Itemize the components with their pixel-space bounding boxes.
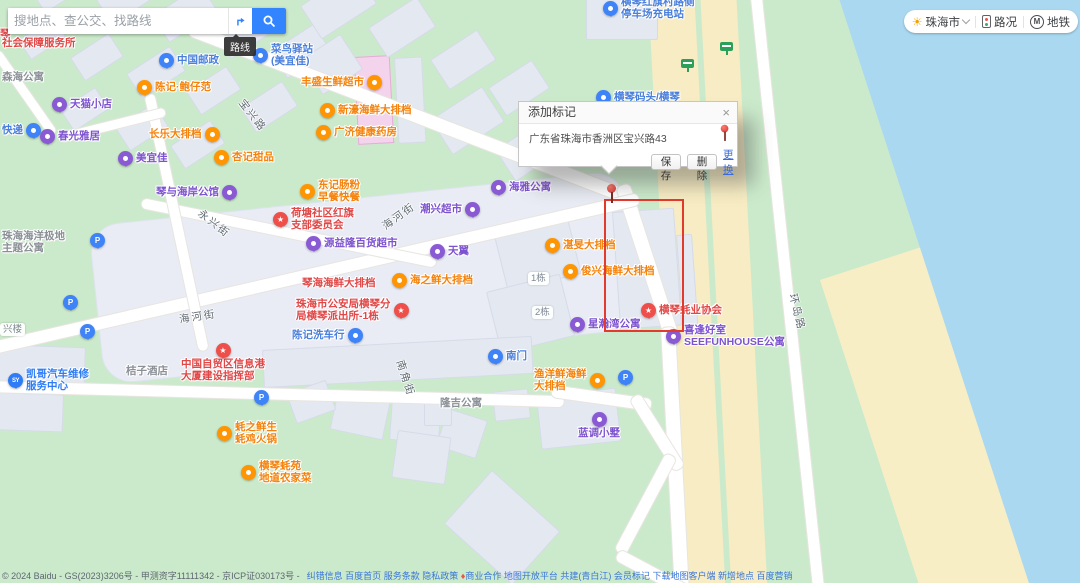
map-marker-pin-icon[interactable] xyxy=(606,184,618,208)
restaurant-pin-icon xyxy=(367,75,382,90)
parking-pin-icon: P xyxy=(254,390,269,405)
poi-label: 喜逢好室SEEFUNHOUSE公寓 xyxy=(684,325,785,348)
map-poi[interactable]: P xyxy=(80,324,95,339)
footer-link[interactable]: 纠错信息 xyxy=(307,571,343,581)
blue-pin-icon xyxy=(159,53,174,68)
poi-label: 中国邮政 xyxy=(177,55,219,67)
poi-label: 南门 xyxy=(506,351,527,363)
save-button[interactable]: 保存 xyxy=(651,154,681,170)
blue-pin-icon xyxy=(348,328,363,343)
poi-label: 中国自贸区信息港大厦建设指挥部 xyxy=(181,359,265,382)
restaurant-pin-icon xyxy=(217,426,232,441)
map-poi[interactable]: 桔子酒店 xyxy=(126,366,168,378)
poi-label: 源益隆百货超市 xyxy=(324,238,398,250)
close-icon[interactable]: × xyxy=(722,105,730,120)
footer-link[interactable]: 百度营销 xyxy=(757,571,793,581)
shop-pin-icon xyxy=(465,202,480,217)
map-poi[interactable]: 1栋 xyxy=(528,272,549,285)
dialog-title: 添加标记 xyxy=(519,102,737,124)
poi-label: 长乐大排档 xyxy=(149,129,202,141)
footer: © 2024 Baidu - GS(2023)3206号 - 甲测资字11111… xyxy=(2,569,793,582)
poi-label: 横琴红旗村路侧停车场充电站 xyxy=(621,0,695,20)
route-icon xyxy=(235,14,246,29)
blue-pin-icon xyxy=(26,123,41,138)
parking-pin-icon: P xyxy=(90,233,105,248)
poi-label: 美宜佳 xyxy=(136,153,168,165)
map-poi[interactable]: 丰盛生鲜超市 xyxy=(301,75,382,90)
divider xyxy=(975,16,976,28)
map-poi[interactable]: 春光雅居 xyxy=(40,129,100,144)
shop-pin-icon xyxy=(306,236,321,251)
map-poi[interactable]: P xyxy=(63,295,78,310)
metro-toggle[interactable]: M 地铁 xyxy=(1030,14,1070,30)
map-poi[interactable]: P xyxy=(618,370,633,385)
poi-label: 新濠海鲜大排档 xyxy=(338,105,412,117)
poi-label: 凯哥汽车维修服务中心 xyxy=(26,369,89,392)
copyright-text: © 2024 Baidu - GS(2023)3206号 - 甲测资字11111… xyxy=(2,569,300,582)
map-poi[interactable]: 琴海海鲜大排档 xyxy=(302,278,376,290)
map-poi[interactable]: P xyxy=(90,233,105,248)
poi-label: 兴楼 xyxy=(0,323,25,336)
poi-label: 丰盛生鲜超市 xyxy=(301,77,364,89)
add-marker-dialog: 添加标记 × 广东省珠海市香洲区宝兴路43 保存 删除 更换 xyxy=(518,101,738,167)
map-poi[interactable]: 中国邮政 xyxy=(159,53,219,68)
city-selector[interactable]: ☀ 珠海市 xyxy=(912,14,969,30)
restaurant-pin-icon xyxy=(563,264,578,279)
poi-label: 东记肠粉早餐快餐 xyxy=(318,180,360,203)
restaurant-pin-icon xyxy=(137,80,152,95)
map-poi[interactable]: 长乐大排档 xyxy=(149,127,220,142)
search-input[interactable] xyxy=(8,8,228,34)
search-bar xyxy=(8,8,286,34)
marker-pin-icon xyxy=(720,125,730,145)
red-pin-icon: ★ xyxy=(216,343,231,358)
annotation-rectangle xyxy=(604,199,684,332)
map-poi[interactable]: 海之鲜大排档 xyxy=(392,273,473,288)
map-poi[interactable]: 珠海市公安局横琴分局横琴派出所-1栋★ xyxy=(296,299,409,322)
city-name: 珠海市 xyxy=(926,14,961,30)
blue-pin-icon xyxy=(603,1,618,16)
map-poi[interactable]: 渔洋鲜海鲜大排档 xyxy=(534,369,605,392)
metro-label: 地铁 xyxy=(1047,14,1070,30)
map-poi[interactable]: P xyxy=(254,390,269,405)
delete-button[interactable]: 删除 xyxy=(687,154,717,170)
poi-label: 2栋 xyxy=(532,306,553,319)
restaurant-pin-icon xyxy=(545,238,560,253)
map-poi[interactable]: SY凯哥汽车维修服务中心 xyxy=(8,369,89,392)
poi-label: 广济健康药房 xyxy=(334,127,397,139)
metro-icon: M xyxy=(1030,15,1044,29)
restaurant-pin-icon xyxy=(214,150,229,165)
restaurant-pin-icon xyxy=(241,465,256,480)
map-poi[interactable]: 新濠海鲜大排档 xyxy=(320,103,412,118)
map-poi[interactable]: 社会保障服务所 xyxy=(2,38,76,50)
restaurant-pin-icon xyxy=(590,373,605,388)
poi-label: 琴与海岸公馆 xyxy=(156,187,219,199)
shop-pin-icon xyxy=(430,244,445,259)
map-poi[interactable] xyxy=(681,59,694,68)
poi-label: 社会保障服务所 xyxy=(2,38,76,50)
parking-pin-icon: P xyxy=(63,295,78,310)
poi-label: 海雅公寓 xyxy=(509,182,551,194)
shop-pin-icon xyxy=(222,185,237,200)
footer-link[interactable]: 会员标记 xyxy=(614,571,650,581)
dialog-actions: 保存 删除 更换 xyxy=(651,147,737,177)
poi-label: 桔子酒店 xyxy=(126,366,168,378)
footer-link[interactable]: 服务条款 xyxy=(384,571,420,581)
map-poi[interactable]: 隆吉公寓 xyxy=(440,398,482,410)
map-poi[interactable]: 珠海海洋极地主题公寓 xyxy=(2,231,65,254)
footer-link[interactable]: 地图开放平台 xyxy=(504,571,558,581)
map-poi[interactable] xyxy=(720,42,733,51)
bus-pin-icon xyxy=(720,42,733,51)
traffic-label: 路况 xyxy=(994,14,1017,30)
map-poi[interactable]: 广济健康药房 xyxy=(316,125,397,140)
poi-label: 荷塘社区红旗支部委员会 xyxy=(291,208,354,231)
poi-label: 陈记洗车行 xyxy=(292,330,345,342)
shop-pin-icon xyxy=(118,151,133,166)
map-poi[interactable]: 琴与海岸公馆 xyxy=(156,185,237,200)
shop-pin-icon xyxy=(40,129,55,144)
map-poi[interactable]: 森海公寓 xyxy=(2,72,44,84)
footer-link[interactable]: 下载地图客户端 xyxy=(652,571,715,581)
shop-pin-icon xyxy=(592,412,607,427)
footer-link[interactable]: 百度首页 xyxy=(345,571,381,581)
restaurant-pin-icon xyxy=(320,103,335,118)
map-poi[interactable]: ★中国自贸区信息港大厦建设指挥部 xyxy=(181,343,265,382)
map-poi[interactable]: 美宜佳 xyxy=(118,151,168,166)
map-poi[interactable]: 源益隆百货超市 xyxy=(306,236,398,251)
poi-label: 潮兴超市 xyxy=(420,204,462,216)
shop-pin-icon xyxy=(491,180,506,195)
poi-label: 横琴蚝苑地道农家菜 xyxy=(259,461,312,484)
traffic-toggle[interactable]: 路况 xyxy=(982,14,1017,30)
baidu-map-app: 宝兴路永兴街海河街海河街南角街环岛路 琴社会保障服务所森海公寓天猫小店快递春光雅… xyxy=(0,0,1080,583)
poi-label: 珠海市公安局横琴分局横琴派出所-1栋 xyxy=(296,299,391,322)
map-poi[interactable]: 杏记甜品 xyxy=(214,150,274,165)
parking-pin-icon: P xyxy=(80,324,95,339)
map-poi[interactable]: 横琴红旗村路侧停车场充电站 xyxy=(603,0,695,20)
poi-label: 琴海海鲜大排档 xyxy=(302,278,376,290)
map-poi[interactable]: 天猫小店 xyxy=(52,97,112,112)
poi-label: 隆吉公寓 xyxy=(440,398,482,410)
blue-pin-icon xyxy=(488,349,503,364)
poi-label: 春光雅居 xyxy=(58,131,100,143)
map-poi[interactable]: 横琴蚝苑地道农家菜 xyxy=(241,461,312,484)
parking-pin-icon: P xyxy=(618,370,633,385)
poi-label: 杏记甜品 xyxy=(232,152,274,164)
restaurant-pin-icon xyxy=(205,127,220,142)
poi-label: 1栋 xyxy=(528,272,549,285)
restaurant-pin-icon xyxy=(300,184,315,199)
route-tooltip: 路线 xyxy=(224,37,256,56)
poi-label: 森海公寓 xyxy=(2,72,44,84)
marker-address: 广东省珠海市香洲区宝兴路43 xyxy=(529,131,667,146)
poi-label: 珠海海洋极地主题公寓 xyxy=(2,231,65,254)
shop-pin-icon xyxy=(52,97,67,112)
map-poi[interactable]: 2栋 xyxy=(532,306,553,319)
poi-label: 陈记·鲍仔范 xyxy=(155,82,211,94)
map-poi[interactable]: 陈记·鲍仔范 xyxy=(137,80,211,95)
map-poi[interactable]: 蓝调小墅 xyxy=(578,412,620,440)
footer-link[interactable]: 商业合作 xyxy=(465,571,501,581)
shop-pin-icon xyxy=(570,317,585,332)
map-poi[interactable]: 天翼 xyxy=(430,244,469,259)
footer-links: 纠错信息 百度首页 服务条款 隐私政策 ♦商业合作 地图开放平台 共建(青白江)… xyxy=(307,569,793,582)
footer-link[interactable]: 隐私政策 xyxy=(422,571,458,581)
poi-label: 海之鲜大排档 xyxy=(410,275,473,287)
poi-label: 蚝之鲜生蚝鸡火锅 xyxy=(235,422,277,445)
footer-link[interactable]: 新增地点 xyxy=(718,571,754,581)
poi-label: 快递 xyxy=(2,125,23,137)
red-pin-icon: ★ xyxy=(273,212,288,227)
map-poi[interactable]: ★荷塘社区红旗支部委员会 xyxy=(273,208,354,231)
weather-sun-icon: ☀ xyxy=(912,15,923,29)
map-poi[interactable]: 兴楼 xyxy=(0,323,25,336)
map-poi[interactable]: 快递 xyxy=(2,123,41,138)
change-link[interactable]: 更换 xyxy=(723,147,737,177)
route-button[interactable] xyxy=(228,8,252,34)
red-pin-icon: ★ xyxy=(394,303,409,318)
poi-label: 天猫小店 xyxy=(70,99,112,111)
chevron-down-icon xyxy=(962,16,970,24)
map-poi[interactable]: 潮兴超市 xyxy=(420,202,480,217)
bus-pin-icon xyxy=(681,59,694,68)
restaurant-pin-icon xyxy=(316,125,331,140)
divider xyxy=(1023,16,1024,28)
poi-label: 渔洋鲜海鲜大排档 xyxy=(534,369,587,392)
map-poi[interactable]: 南门 xyxy=(488,349,527,364)
map-poi[interactable]: 海雅公寓 xyxy=(491,180,551,195)
map-poi[interactable]: 东记肠粉早餐快餐 xyxy=(300,180,360,203)
poi-label: 天翼 xyxy=(448,246,469,258)
search-icon xyxy=(262,14,276,28)
poi-label: 菜鸟驿站(美宜佳) xyxy=(271,44,313,67)
traffic-light-icon xyxy=(982,15,991,28)
sy-pin-icon: SY xyxy=(8,373,23,388)
poi-layer: 琴社会保障服务所森海公寓天猫小店快递春光雅居美宜佳长乐大排档杏记甜品陈记·鲍仔范… xyxy=(0,0,1080,583)
map-poi[interactable]: 陈记洗车行 xyxy=(292,328,363,343)
search-button[interactable] xyxy=(252,8,286,34)
map-controls-bar: ☀ 珠海市 路况 M 地铁 xyxy=(904,10,1078,33)
restaurant-pin-icon xyxy=(392,273,407,288)
map-poi[interactable]: 菜鸟驿站(美宜佳) xyxy=(253,44,313,67)
map-poi[interactable]: 蚝之鲜生蚝鸡火锅 xyxy=(217,422,277,445)
footer-link[interactable]: 共建(青白江) xyxy=(560,571,611,581)
